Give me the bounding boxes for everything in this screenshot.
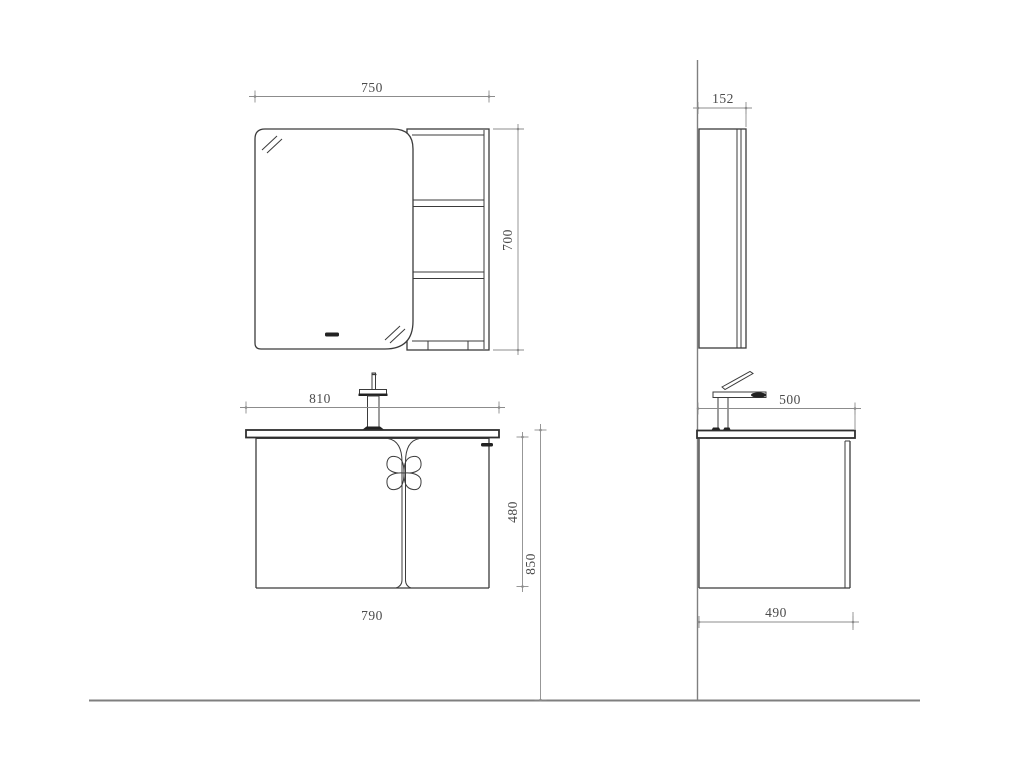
dimension-label-490: 490 [765,605,787,620]
brand-logo-mark [481,443,493,447]
technical-drawing: 750 [0,0,1024,768]
vanity-front-view: 810 480 [240,373,547,701]
mirror-glass [255,129,413,349]
dimension-label-480: 480 [505,501,520,523]
dimension-label-500: 500 [779,392,801,407]
mirror-cabinet-side-view: 152 [693,91,752,348]
shelf-unit [407,129,489,350]
faucet-lever [722,372,753,390]
countertop-front [246,430,499,438]
faucet-collar [360,390,387,395]
faucet-body [368,396,380,428]
dimension-mirror-width: 750 [249,80,495,103]
drawing-canvas: 750 [0,0,1024,768]
countertop-side [697,431,855,439]
vanity-cabinet-body [256,438,493,588]
vanity-side-view: 500 490 [697,372,861,631]
dimension-mirror-height: 700 [493,124,524,355]
faucet-spout-tip [751,392,766,397]
dimension-label-750: 750 [361,80,383,95]
dimension-label-810: 810 [309,391,331,406]
dimension-mirror-depth: 152 [693,91,752,127]
dimension-overall-height: 850 [523,424,547,701]
flower-ornament [387,456,421,489]
dimension-label-850: 850 [523,553,538,575]
mirror-door [255,129,413,349]
brand-logo-mark [325,333,339,337]
vanity-side-body [699,438,850,588]
faucet-front [359,373,388,430]
faucet-handle-rod [372,373,376,390]
cabinet-side-body [699,129,746,348]
mirror-cabinet-front-view: 750 [249,80,524,355]
dimension-label-790: 790 [361,608,383,623]
dimension-label-152: 152 [712,91,734,106]
faucet-side [711,372,766,432]
dimension-cabinet-depth: 490 [698,605,859,630]
dimension-label-700: 700 [500,229,515,251]
